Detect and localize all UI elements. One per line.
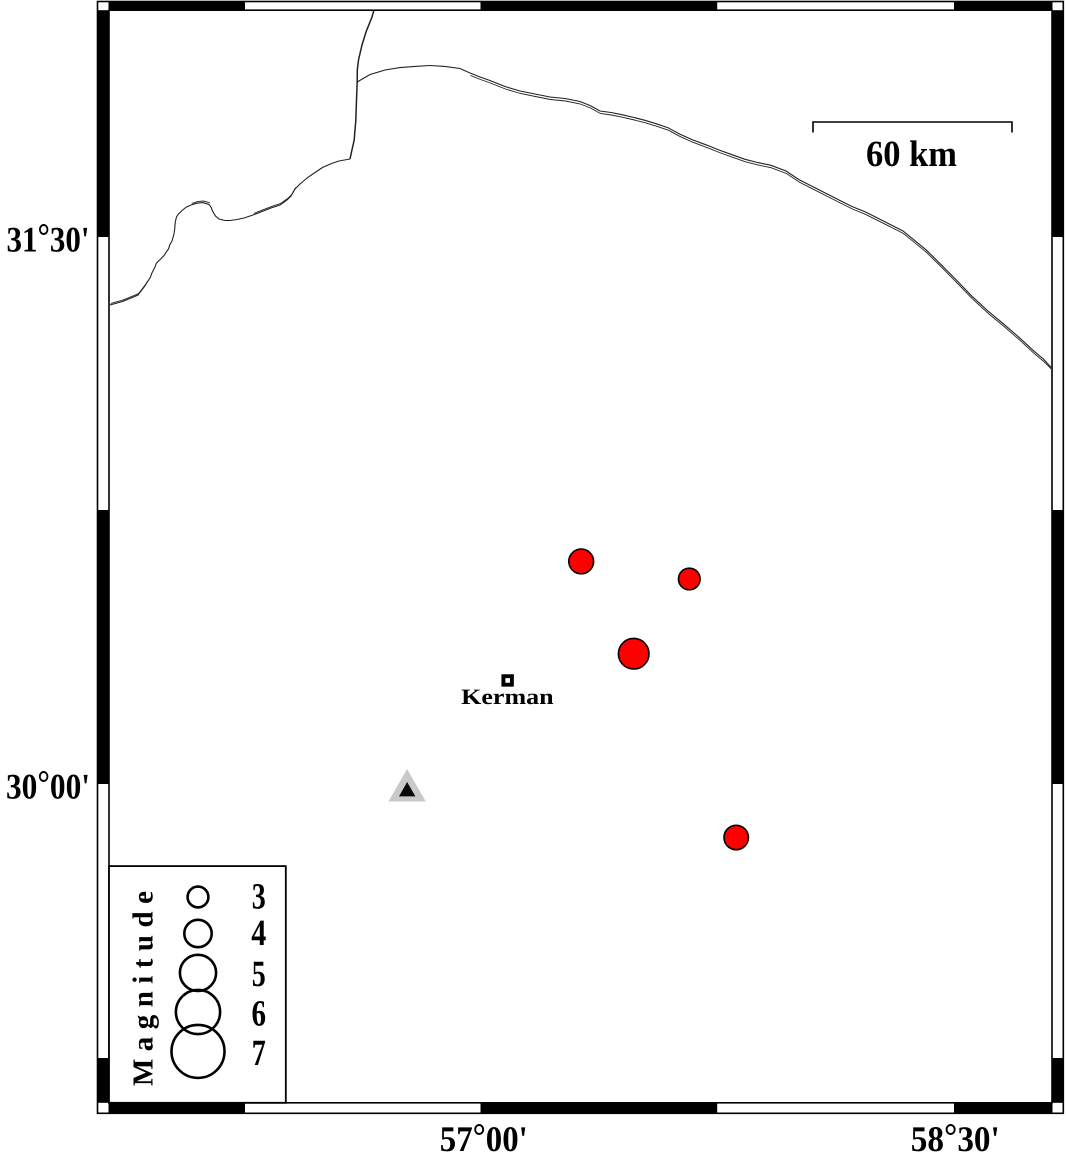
- svg-text:Kerman: Kerman: [461, 684, 554, 709]
- svg-text:6: 6: [251, 994, 266, 1035]
- svg-text:3: 3: [252, 876, 266, 917]
- svg-text:7: 7: [252, 1033, 266, 1074]
- svg-text:5: 5: [252, 954, 266, 995]
- svg-text:60 km: 60 km: [866, 134, 957, 175]
- svg-text:30°00': 30°00': [6, 763, 90, 806]
- svg-text:31°30': 31°30': [7, 216, 90, 259]
- svg-text:4: 4: [251, 913, 266, 954]
- svg-text:57°00': 57°00': [440, 1116, 528, 1152]
- svg-text:58°30': 58°30': [911, 1116, 1000, 1152]
